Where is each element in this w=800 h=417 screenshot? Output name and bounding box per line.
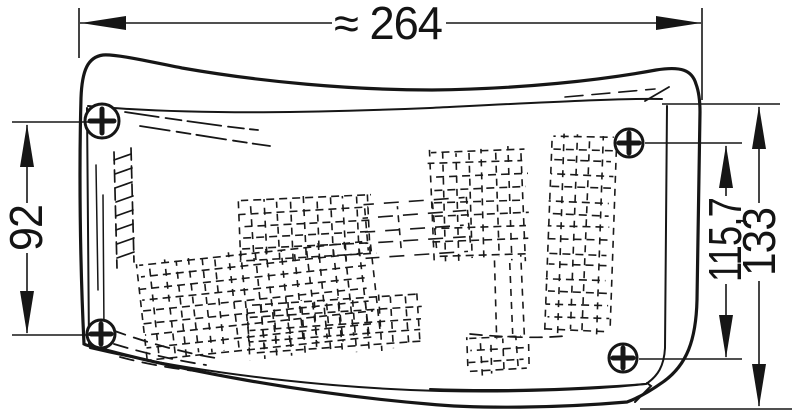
- texture-line: [549, 201, 609, 204]
- texture-line: [508, 146, 512, 260]
- texture-line: [546, 238, 611, 241]
- left-reflection: [103, 195, 104, 332]
- flange-bottom: [430, 384, 646, 390]
- lens-right-edge: [646, 106, 667, 384]
- arrowhead-right: [656, 16, 701, 30]
- texture-patch: [427, 145, 531, 264]
- texture-line: [432, 238, 528, 242]
- texture-line: [442, 151, 447, 261]
- texture-line: [241, 194, 371, 202]
- technical-drawing-canvas: ≈ 264 92 115,7 133: [0, 0, 800, 417]
- texture-line: [242, 231, 372, 238]
- lamp-technical-drawing: ≈ 264 92 115,7 133: [0, 0, 800, 417]
- texture-line: [547, 316, 609, 319]
- texture-line: [480, 337, 482, 376]
- texture-line: [303, 196, 306, 258]
- texture-line: [528, 339, 530, 369]
- mounting-screw-top-right: [615, 129, 643, 157]
- texture-line: [342, 196, 346, 261]
- arrowhead-down: [752, 364, 766, 407]
- dimension-label-width: ≈ 264: [334, 0, 442, 49]
- texture-line: [553, 135, 613, 138]
- texture-line: [553, 149, 614, 152]
- texture-line: [521, 255, 525, 336]
- arrowhead-down: [20, 291, 34, 334]
- texture-line: [545, 138, 552, 332]
- texture-line: [521, 149, 526, 261]
- mounting-screw-top-left: [85, 104, 119, 138]
- texture-line: [431, 186, 526, 190]
- texture-line: [466, 197, 470, 245]
- left-ladder-hatch: [114, 148, 134, 268]
- texture-patch: [246, 291, 425, 360]
- texture-patch: [543, 133, 617, 336]
- lens-top-edge: [88, 99, 662, 112]
- mounting-screw-bottom-right: [609, 344, 637, 372]
- texture-line: [330, 196, 333, 260]
- bottom-right-dashes: [470, 334, 565, 337]
- texture-line: [139, 265, 366, 289]
- dimension-label-right-outer: 133: [733, 208, 785, 276]
- texture-patch: [136, 237, 381, 363]
- texture-line: [455, 153, 460, 263]
- texture-line: [596, 136, 603, 334]
- texture-line: [316, 199, 320, 260]
- texture-line: [610, 139, 617, 331]
- texture-line: [469, 359, 524, 362]
- texture-line: [370, 240, 380, 333]
- texture-line: [251, 294, 418, 306]
- texture-line: [294, 250, 304, 345]
- texture-line: [416, 292, 420, 343]
- arrowhead-down: [719, 315, 733, 358]
- texture-line: [362, 210, 466, 218]
- texture-line: [546, 279, 606, 281]
- lens-texture: [136, 133, 617, 376]
- texture-line: [516, 336, 519, 371]
- texture-line: [466, 337, 468, 371]
- dimension-width-top: ≈ 264: [79, 0, 702, 100]
- texture-line: [470, 348, 526, 351]
- texture-line: [480, 149, 485, 260]
- texture-line: [150, 337, 372, 361]
- texture-line: [277, 202, 280, 261]
- texture-patch: [494, 255, 525, 339]
- texture-line: [429, 150, 434, 263]
- texture-line: [145, 311, 373, 335]
- texture-line: [434, 253, 528, 257]
- mounting-screw-bottom-left: [87, 320, 115, 348]
- bevel-dash: [565, 89, 655, 97]
- texture-line: [570, 134, 577, 329]
- texture-line: [494, 256, 498, 339]
- texture-line: [363, 197, 464, 204]
- arrowhead-left: [81, 16, 126, 30]
- lens-bottom-edge: [90, 348, 645, 392]
- texture-line: [551, 174, 613, 177]
- arrowhead-up: [20, 124, 34, 167]
- texture-line: [141, 253, 363, 277]
- texture-line: [139, 242, 362, 266]
- texture-line: [142, 276, 368, 301]
- texture-line: [397, 206, 401, 249]
- left-reflection: [96, 165, 98, 290]
- texture-line: [490, 341, 493, 374]
- texture-line: [470, 368, 527, 371]
- lens-left-edge: [87, 108, 89, 346]
- texture-line: [290, 197, 294, 263]
- texture-line: [545, 303, 608, 306]
- texture-line: [510, 259, 513, 334]
- arrowhead-up: [719, 145, 733, 188]
- texture-line: [496, 152, 500, 257]
- texture-line: [366, 251, 468, 258]
- texture-line: [338, 297, 342, 349]
- texture-line: [582, 139, 590, 331]
- texture-line: [176, 261, 186, 357]
- texture-line: [431, 149, 524, 153]
- texture-line: [365, 236, 465, 244]
- texture-line: [390, 297, 394, 349]
- texture-line: [548, 253, 606, 255]
- dimension-label-height-left: 92: [0, 205, 52, 251]
- texture-line: [502, 339, 504, 372]
- arrowhead-up: [752, 106, 766, 149]
- dimension-height-left: 92: [0, 122, 100, 335]
- texture-line: [431, 173, 528, 177]
- texture-patch: [466, 334, 530, 376]
- texture-line: [430, 212, 529, 216]
- texture-line: [240, 220, 371, 227]
- texture-line: [543, 329, 608, 332]
